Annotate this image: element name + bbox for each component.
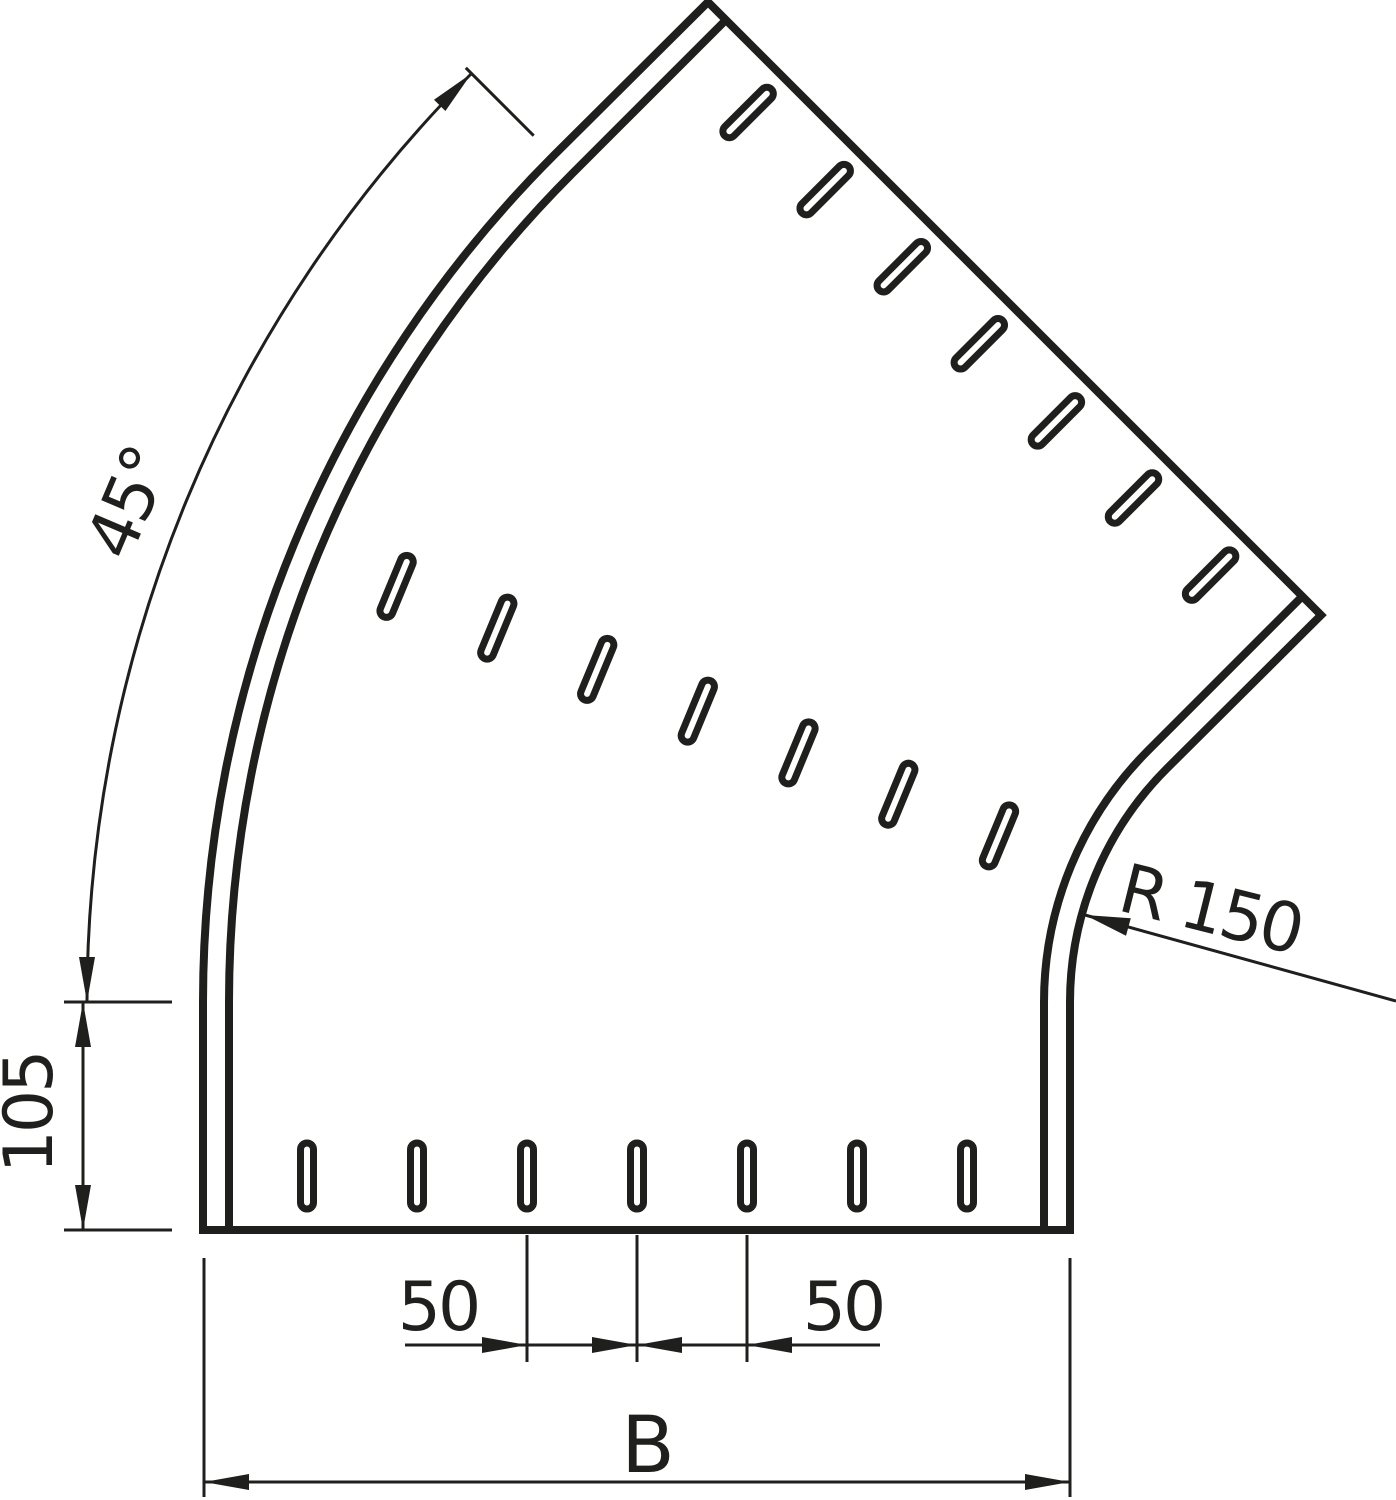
technical-drawing-canvas: 45° 105 R 150 50 50 B [0, 0, 1396, 1500]
slot [851, 1143, 864, 1209]
slot [741, 1143, 754, 1209]
drawing-page: 45° 105 R 150 50 50 B [0, 0, 1396, 1500]
dim-label-b: B [621, 1401, 675, 1491]
slot [631, 1143, 644, 1209]
dim-label-50-right: 50 [803, 1268, 884, 1347]
slot [301, 1143, 314, 1209]
dim-label-50-left: 50 [398, 1268, 479, 1347]
slot [521, 1143, 534, 1209]
slot [961, 1143, 974, 1209]
dim-label-105: 105 [0, 1053, 69, 1174]
slot [411, 1143, 424, 1209]
